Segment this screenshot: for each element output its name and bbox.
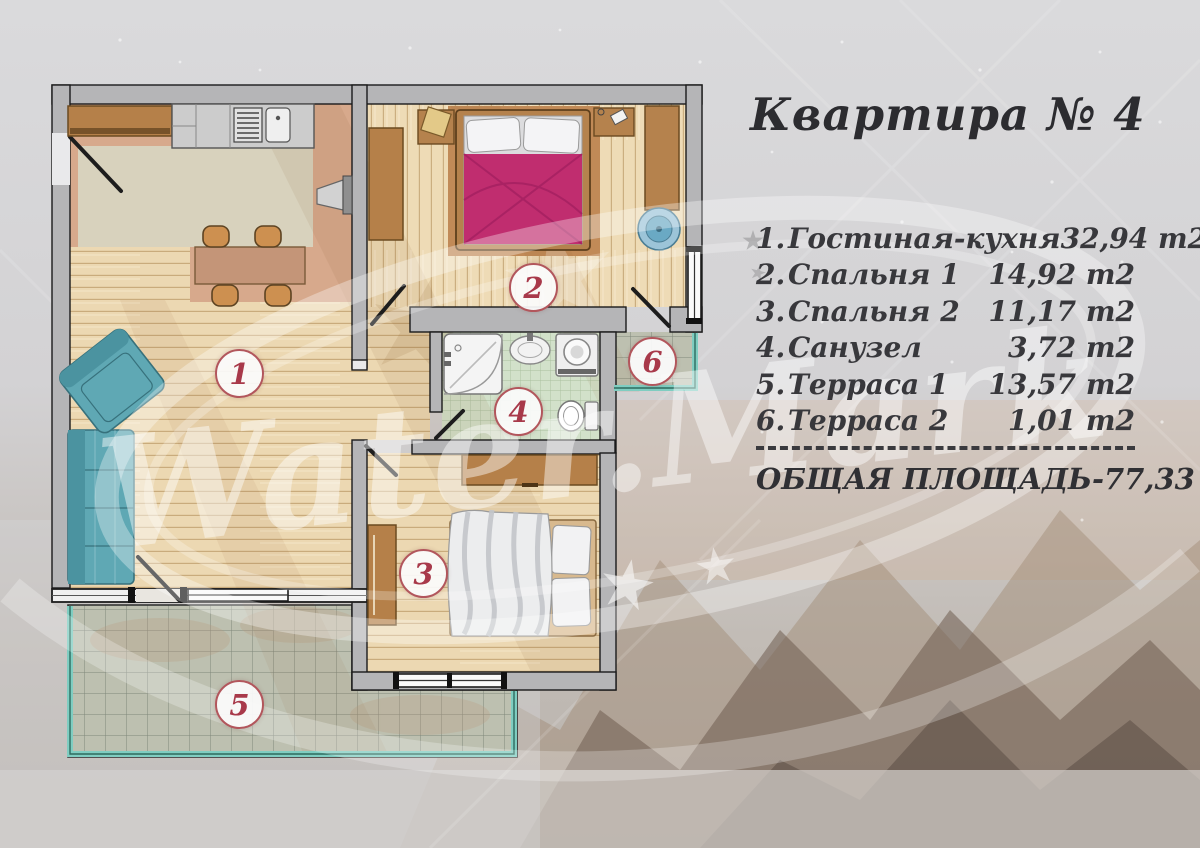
- flyer: Water.Mark 1 2 3 4 5 6 Квартира № 4 1. Г…: [0, 0, 1200, 848]
- legend-name: Спальня 1: [788, 257, 960, 293]
- legend-num: 4.: [756, 330, 788, 366]
- legend-name: Терраса 1: [788, 367, 948, 403]
- legend: 1. Гостиная-кухня 32,94 m2 2. Спальня 1 …: [756, 221, 1135, 439]
- legend-row: 2. Спальня 1 14,92 m2: [756, 257, 1135, 293]
- legend-num: 6.: [756, 403, 788, 439]
- legend-num: 5.: [756, 367, 788, 403]
- legend-area: 13,57 m2: [988, 367, 1135, 403]
- nightstand-left: [418, 107, 454, 144]
- dining-table: [195, 247, 305, 284]
- legend-num: 1.: [756, 221, 788, 257]
- total-area: ОБЩАЯ ПЛОЩАДЬ-77,33 m2: [756, 462, 1138, 496]
- legend-area: 11,17 m2: [988, 294, 1135, 330]
- legend-area: 32,94 m2: [1061, 221, 1200, 257]
- room-label-bedroom2: 3: [399, 549, 448, 598]
- legend-row: 6. Терраса 2 1,01 m2: [756, 403, 1135, 439]
- legend-name: Спальня 2: [788, 294, 960, 330]
- legend-name: Терраса 2: [788, 403, 948, 439]
- legend-divider: [756, 446, 1135, 450]
- room-label-bathroom: 4: [494, 387, 543, 436]
- stool: [212, 285, 238, 306]
- kitchen-sink-icon: [266, 108, 290, 142]
- entrance-opening: [52, 133, 70, 185]
- stool: [203, 226, 229, 247]
- kitchen-counter: [172, 104, 314, 148]
- legend-name: Гостиная-кухня: [788, 221, 1061, 257]
- legend-num: 2.: [756, 257, 788, 293]
- wall-top: [52, 85, 702, 104]
- stove-icon: [234, 108, 262, 142]
- nightstand-right: [594, 108, 634, 136]
- room-label-living-kitchen: 1: [215, 349, 264, 398]
- legend-area: 14,92 m2: [988, 257, 1135, 293]
- window-bedroom2-south: [393, 672, 507, 689]
- legend-row: 5. Терраса 1 13,57 m2: [756, 367, 1135, 403]
- bedroom1-wardrobe-left: [369, 128, 403, 240]
- bedroom1-wardrobe-right: [645, 106, 679, 210]
- legend-name: Санузел: [788, 330, 922, 366]
- wall-bedroom1-south-a: [410, 307, 626, 332]
- stool: [255, 226, 281, 247]
- stool: [265, 285, 291, 306]
- room-label-bedroom1: 2: [509, 263, 558, 312]
- page-title: Квартира № 4: [750, 88, 1140, 141]
- room-label-terrace2: 6: [628, 337, 677, 386]
- legend-area: 1,01 m2: [1008, 403, 1135, 439]
- legend-area: 3,72 m2: [1008, 330, 1135, 366]
- window-bedroom1-east: [686, 246, 702, 324]
- wall-end-cap: [352, 360, 367, 370]
- legend-num: 3.: [756, 294, 788, 330]
- legend-row: 1. Гостиная-кухня 32,94 m2: [756, 221, 1135, 257]
- legend-row: 3. Спальня 2 11,17 m2: [756, 294, 1135, 330]
- room-label-terrace1: 5: [215, 680, 264, 729]
- legend-row: 4. Санузел 3,72 m2: [756, 330, 1135, 366]
